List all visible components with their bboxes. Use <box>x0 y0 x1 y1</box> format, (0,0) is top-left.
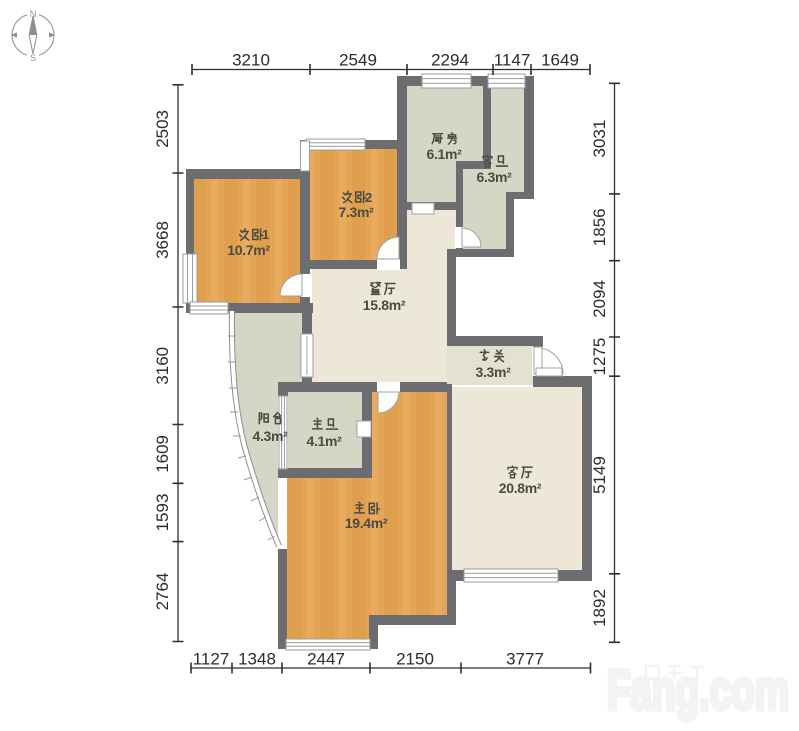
svg-text:19.4m²: 19.4m² <box>345 515 388 531</box>
svg-text:1: 1 <box>262 227 269 242</box>
svg-text:3160: 3160 <box>153 347 172 385</box>
svg-text:1892: 1892 <box>590 589 609 627</box>
svg-text:1147: 1147 <box>494 51 531 70</box>
svg-text:1348: 1348 <box>238 650 276 669</box>
svg-text:3777: 3777 <box>506 650 544 669</box>
svg-text:2294: 2294 <box>431 51 469 70</box>
svg-text:2094: 2094 <box>590 280 609 318</box>
svg-text:2549: 2549 <box>339 51 377 70</box>
svg-text:1127: 1127 <box>193 650 230 669</box>
svg-text:2: 2 <box>365 190 372 205</box>
svg-text:20.8m²: 20.8m² <box>499 480 542 496</box>
svg-text:2503: 2503 <box>153 110 172 148</box>
svg-text:1275: 1275 <box>590 338 609 376</box>
svg-text:1649: 1649 <box>541 51 579 70</box>
svg-text:3210: 3210 <box>232 51 270 70</box>
svg-text:3.3m²: 3.3m² <box>475 364 511 380</box>
svg-text:1856: 1856 <box>590 208 609 246</box>
svg-text:6.1m²: 6.1m² <box>426 146 462 162</box>
svg-text:7.3m²: 7.3m² <box>338 204 374 220</box>
svg-text:3031: 3031 <box>590 120 609 158</box>
svg-text:S: S <box>30 53 36 64</box>
svg-text:4.3m²: 4.3m² <box>252 428 288 444</box>
svg-text:2447: 2447 <box>307 650 345 669</box>
svg-text:1593: 1593 <box>153 494 172 532</box>
svg-text:1609: 1609 <box>153 435 172 473</box>
svg-text:5149: 5149 <box>590 456 609 494</box>
svg-text:15.8m²: 15.8m² <box>363 297 406 313</box>
svg-text:2150: 2150 <box>396 650 434 669</box>
svg-text:10.7m²: 10.7m² <box>227 242 270 258</box>
svg-text:3668: 3668 <box>153 221 172 259</box>
svg-text:6.3m²: 6.3m² <box>476 169 512 185</box>
svg-text:4.1m²: 4.1m² <box>306 433 342 449</box>
svg-text:2764: 2764 <box>153 573 172 611</box>
